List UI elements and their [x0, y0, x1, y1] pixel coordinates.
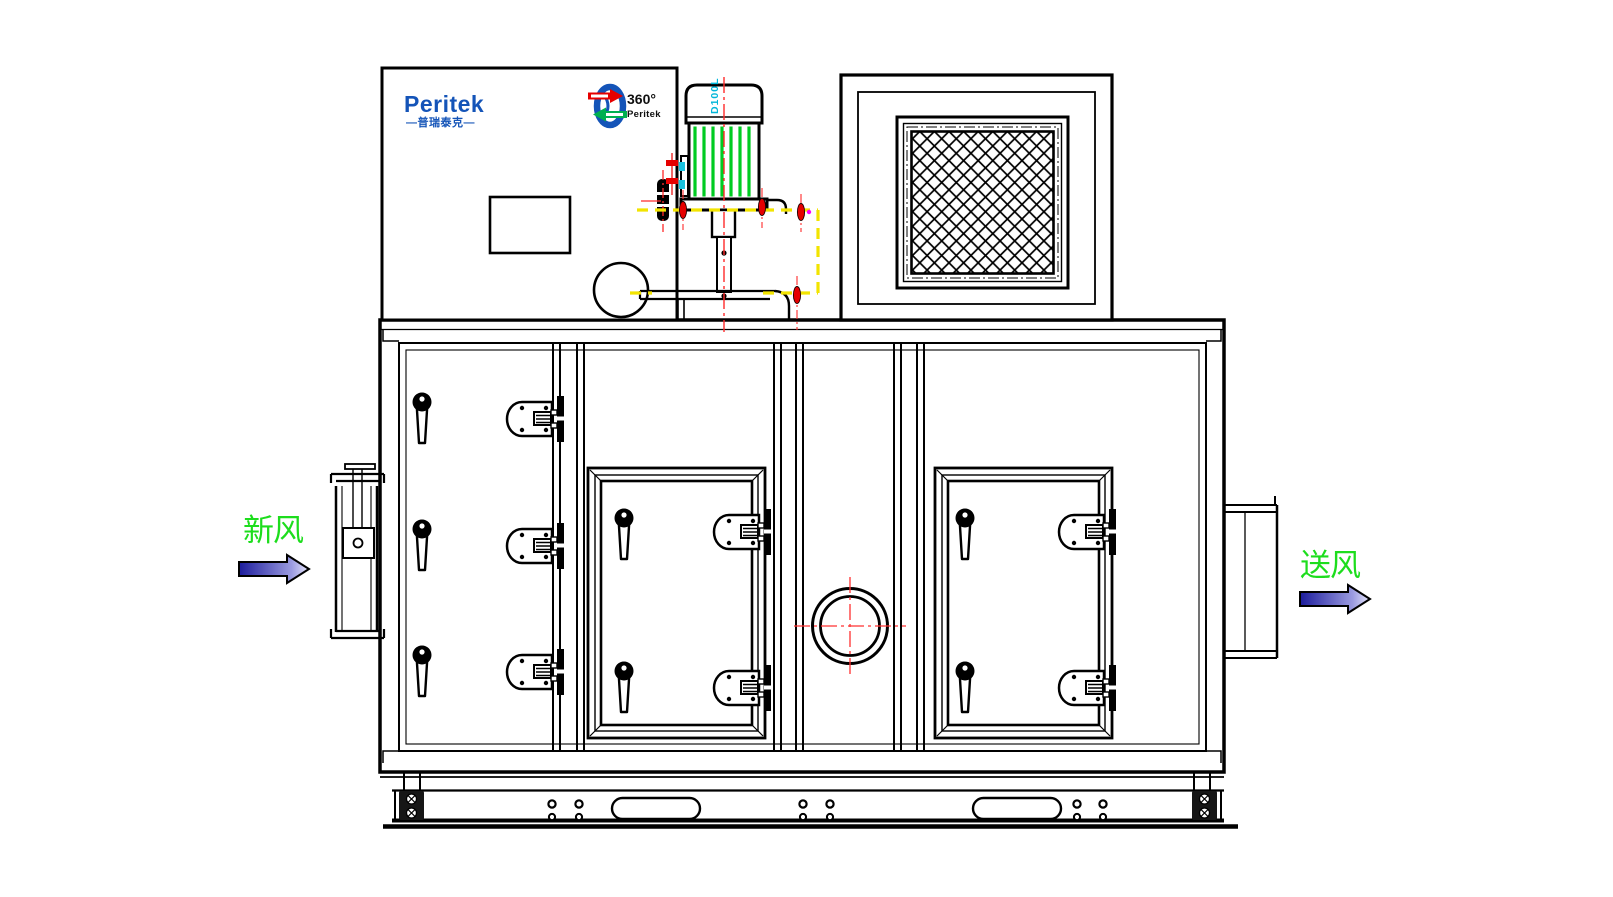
anchor-bracket — [399, 791, 424, 820]
rotor-degrees-text: 360° — [627, 91, 656, 107]
brand-subtitle-cn: —普瑞泰克— — [406, 115, 475, 129]
conduit-elbow — [767, 200, 786, 214]
anchor-bracket — [1192, 791, 1217, 820]
fresh-air-label: 新风 — [243, 513, 304, 548]
fresh-air-arrow-icon — [239, 555, 309, 583]
fresh-air-annotation: 新风 — [239, 513, 309, 583]
nameplate-rect — [490, 197, 570, 253]
base-bolt-holes — [548, 800, 555, 820]
peritek-logo: Peritek —普瑞泰克— — [404, 91, 484, 129]
base-bolt-holes — [1099, 800, 1106, 820]
inlet-bottom-flange — [331, 629, 384, 638]
rotor-brand-text: Peritek — [627, 109, 661, 120]
supply-air-annotation: 送风 — [1300, 548, 1370, 613]
base-bolt-holes — [1073, 800, 1080, 820]
base-bolt-holes — [826, 800, 833, 820]
supply-air-arrow-icon — [1300, 585, 1370, 613]
filter-mesh — [912, 132, 1054, 274]
forklift-slot — [973, 798, 1061, 819]
motor-cooling-fins — [695, 127, 749, 197]
forklift-slot — [612, 798, 700, 819]
supply-air-label: 送风 — [1300, 548, 1361, 583]
brand-text: Peritek — [404, 91, 484, 117]
damper-shaft-handle — [345, 464, 375, 469]
inlet-top-flange — [331, 474, 384, 483]
base-bolt-holes — [799, 800, 806, 820]
outlet-flange — [1225, 496, 1277, 658]
filter-grille-box — [841, 75, 1112, 320]
control-box: Peritek —普瑞泰克— 360° Peritek — [382, 68, 677, 320]
gauge-port-circle — [594, 263, 648, 317]
inlet-damper — [331, 464, 384, 638]
technical-drawing-canvas: Peritek —普瑞泰克— 360° Peritek — [0, 0, 1613, 897]
dehumidifier-elevation-drawing: Peritek —普瑞泰克— 360° Peritek — [0, 0, 1613, 897]
damper-actuator-box — [343, 528, 374, 558]
base-frame — [383, 772, 1238, 827]
base-bolt-holes — [575, 800, 582, 820]
motor-model-text: D100L — [709, 77, 721, 114]
